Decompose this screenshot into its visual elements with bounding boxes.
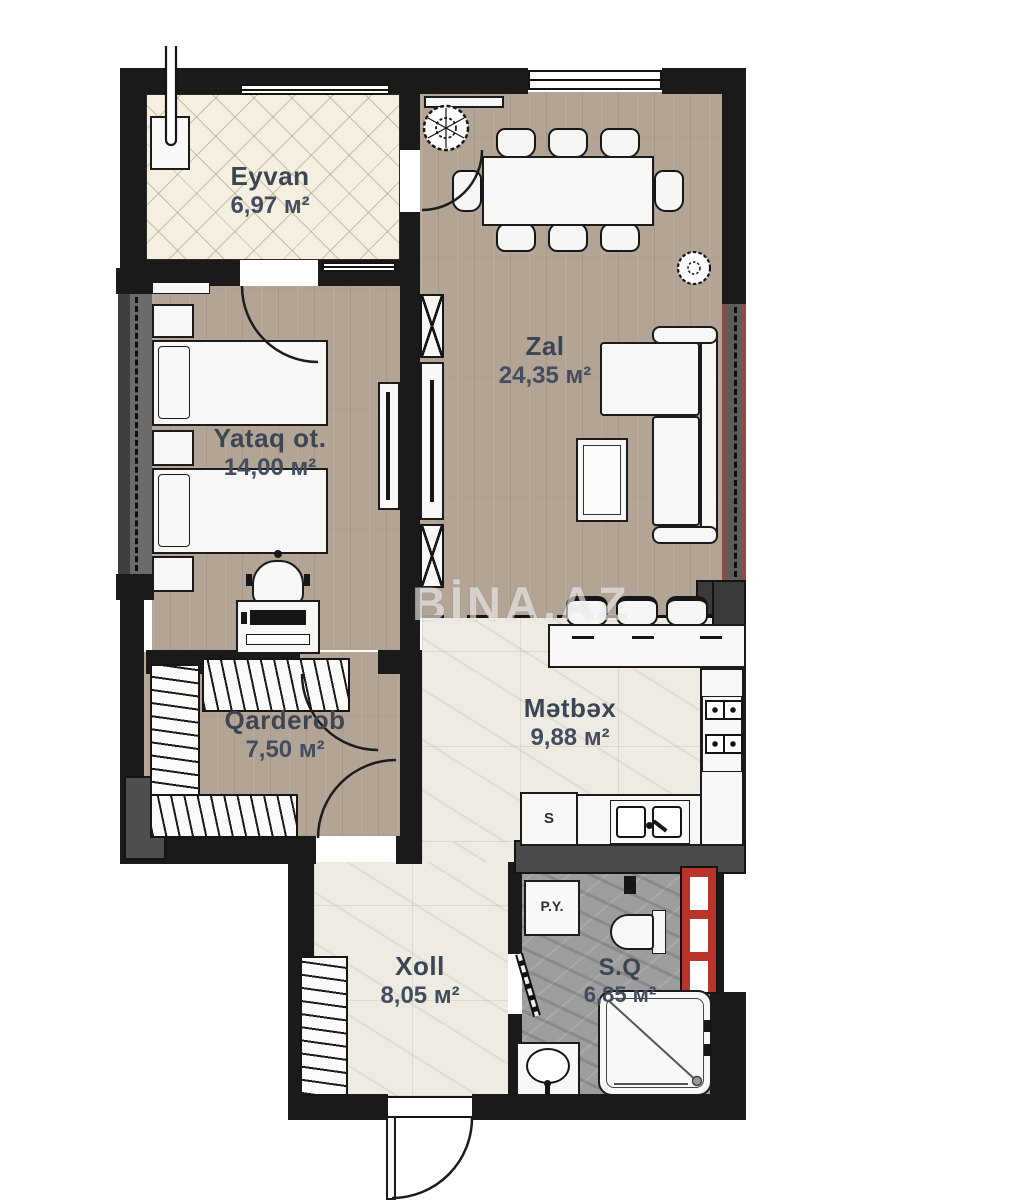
dining-chair bbox=[600, 128, 640, 158]
room-name: Eyvan bbox=[160, 162, 380, 192]
sofa-backrest bbox=[700, 330, 718, 540]
chair-armrest bbox=[304, 574, 310, 586]
door-arc-entrance bbox=[392, 1118, 472, 1198]
window-glass-line bbox=[734, 307, 737, 577]
window-balcony-top bbox=[240, 84, 390, 95]
coffee-table-top bbox=[583, 445, 621, 515]
counter-handle bbox=[700, 636, 722, 639]
dining-chair bbox=[496, 222, 536, 252]
dining-chair bbox=[548, 128, 588, 158]
floor-plan: Eyvan 6,97 м² Zal 24,35 м² Yataq ot. 14,… bbox=[0, 0, 1015, 1200]
room-label-bedroom: Yataq ot. 14,00 м² bbox=[160, 424, 380, 481]
stove-burner bbox=[723, 700, 743, 720]
stove-burner bbox=[723, 734, 743, 754]
room-label-kitchen: Mətbəx 9,88 м² bbox=[460, 694, 680, 751]
shower-fixture bbox=[704, 1020, 712, 1032]
pillow bbox=[158, 346, 190, 419]
room-area: 14,00 м² bbox=[160, 454, 380, 482]
room-label-wardrobe: Qarderob 7,50 м² bbox=[175, 706, 395, 763]
wall bbox=[396, 836, 422, 864]
room-area: 6,97 м² bbox=[160, 192, 380, 220]
shower-inner bbox=[606, 998, 704, 1088]
balcony-door-leaf bbox=[424, 96, 504, 108]
faucet bbox=[646, 822, 653, 829]
wall bbox=[402, 650, 422, 864]
entrance-threshold bbox=[388, 1096, 472, 1118]
chair-headrest bbox=[274, 550, 282, 558]
wall bbox=[722, 68, 746, 304]
room-area: 6,85 м² bbox=[530, 982, 710, 1007]
nightstand bbox=[152, 304, 194, 338]
room-name: Xoll bbox=[310, 952, 530, 982]
keyboard bbox=[246, 634, 310, 645]
bathroom-sink-basin bbox=[526, 1048, 570, 1084]
toilet-bowl bbox=[610, 914, 654, 950]
dining-chair bbox=[600, 222, 640, 252]
dining-chair bbox=[496, 128, 536, 158]
counter-handle bbox=[632, 636, 654, 639]
room-name: Mətbəx bbox=[460, 694, 680, 724]
wall bbox=[508, 862, 522, 954]
window-livingroom-right bbox=[722, 304, 746, 580]
dining-chair bbox=[452, 170, 482, 212]
counter-handle bbox=[572, 636, 594, 639]
wall bbox=[378, 650, 402, 674]
chair-armrest bbox=[246, 574, 252, 586]
stove-burner bbox=[705, 700, 725, 720]
tv-screen bbox=[386, 392, 390, 500]
wall bbox=[400, 92, 420, 150]
wall bbox=[288, 1094, 388, 1120]
sofa-armrest bbox=[652, 526, 718, 544]
sink-basin bbox=[616, 806, 646, 838]
room-name: Zal bbox=[430, 332, 660, 362]
window-glass-line bbox=[135, 297, 138, 571]
room-area: 9,88 м² bbox=[460, 724, 680, 752]
watermark: BİNA.AZ bbox=[412, 576, 631, 631]
room-label-livingroom: Zal 24,35 м² bbox=[430, 332, 660, 389]
entrance-door-leaf bbox=[386, 1116, 396, 1200]
wall bbox=[120, 68, 146, 268]
faucet-lever bbox=[545, 1086, 550, 1095]
shower-fixture bbox=[704, 1044, 712, 1056]
clothes-rack bbox=[202, 658, 350, 712]
room-name: S.Q bbox=[530, 954, 710, 982]
tv-screen bbox=[430, 380, 434, 502]
wall bbox=[710, 992, 746, 1096]
desk bbox=[236, 600, 320, 654]
sofa-seat bbox=[652, 416, 700, 526]
pillow bbox=[158, 474, 190, 547]
clothes-rack bbox=[150, 794, 298, 838]
dining-table bbox=[482, 156, 654, 226]
pc-tower bbox=[241, 612, 247, 624]
wall bbox=[472, 1094, 746, 1120]
wall bbox=[116, 574, 154, 600]
bar-stool bbox=[666, 596, 708, 626]
room-name: Yataq ot. bbox=[160, 424, 380, 454]
dining-chair bbox=[654, 170, 684, 212]
window-balcony-bedroom bbox=[322, 262, 396, 272]
toilet-tank bbox=[652, 910, 666, 954]
shelf bbox=[152, 282, 210, 294]
room-label-balcony: Eyvan 6,97 м² bbox=[160, 162, 380, 219]
sofa-armrest bbox=[652, 326, 718, 344]
window-bedroom-left bbox=[118, 294, 152, 574]
room-label-hall: Xoll 8,05 м² bbox=[310, 952, 530, 1009]
window-livingroom-top bbox=[528, 70, 662, 90]
room-name: Qarderob bbox=[175, 706, 395, 736]
fridge-label: S bbox=[520, 810, 578, 827]
toilet-valve bbox=[624, 876, 636, 894]
room-area: 24,35 м² bbox=[430, 362, 660, 390]
nightstand bbox=[152, 556, 194, 592]
room-label-bathroom: S.Q 6,85 м² bbox=[530, 954, 710, 1007]
stove-burner bbox=[705, 734, 725, 754]
monitor bbox=[250, 610, 306, 625]
dining-chair bbox=[548, 222, 588, 252]
room-area: 8,05 м² bbox=[310, 982, 530, 1010]
washing-machine-label: P.Y. bbox=[524, 898, 580, 914]
room-area: 7,50 м² bbox=[175, 736, 395, 764]
